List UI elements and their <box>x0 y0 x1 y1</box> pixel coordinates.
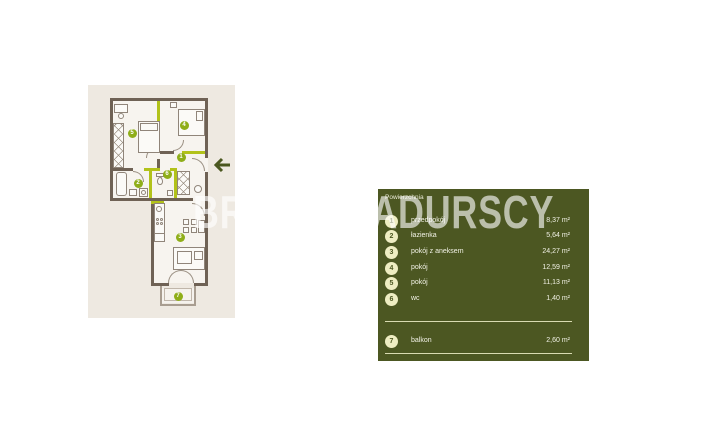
room-number-badge: 3 <box>385 246 398 259</box>
wall-segment <box>110 198 154 201</box>
legend-divider <box>385 353 572 354</box>
legend-row-balcony: 7 balkon 2,60 m² <box>385 335 579 348</box>
chair-icon <box>183 219 189 225</box>
room-number-badge: 5 <box>385 277 398 290</box>
balcony-railing <box>194 286 196 306</box>
wall-segment <box>157 159 160 168</box>
room-badge-5: 5 <box>128 129 137 138</box>
kitchen-sink-icon <box>156 206 162 212</box>
room-badge-2: 2 <box>134 179 143 188</box>
legend-row: 3 pokój z aneksem 24,27 m² <box>385 246 579 259</box>
entrance-arrow-icon <box>212 157 232 173</box>
wall-segment <box>205 98 208 158</box>
legend-row: 6 wc 1,40 m² <box>385 293 579 306</box>
accent-wall <box>182 151 205 154</box>
stove-burner-icon <box>160 222 163 225</box>
desk-icon <box>114 104 128 113</box>
wall-segment <box>113 168 133 171</box>
room-area: 2,60 m² <box>546 337 570 344</box>
stove-burner-icon <box>156 222 159 225</box>
room-number-badge: 7 <box>385 335 398 348</box>
chair-icon <box>183 227 189 233</box>
side-table-icon <box>194 251 203 260</box>
small-sink-icon <box>167 190 173 196</box>
room-badge-4: 4 <box>180 121 189 130</box>
legend-divider <box>385 321 572 322</box>
room-label: pokój <box>411 264 428 271</box>
accent-wall <box>149 171 152 198</box>
watermark: BRACIA SADURSCY <box>193 189 554 235</box>
room-badge-3: 3 <box>176 233 185 242</box>
room-number-badge: 6 <box>385 293 398 306</box>
room-label: balkon <box>411 337 432 344</box>
legend-row: 5 pokój 11,13 m² <box>385 277 579 290</box>
chair-icon <box>118 113 124 119</box>
nightstand-icon <box>170 102 177 108</box>
room-label: pokój <box>411 279 428 286</box>
room-area: 12,59 m² <box>542 264 570 271</box>
pillow-icon <box>196 111 203 121</box>
fridge-icon <box>154 233 165 242</box>
room-number-badge: 4 <box>385 262 398 275</box>
sink-icon <box>129 189 137 196</box>
pillow-icon <box>140 123 158 131</box>
wall-segment <box>194 283 208 286</box>
toilet-icon <box>157 177 163 185</box>
balcony-railing <box>160 286 162 306</box>
wall-segment <box>160 151 174 154</box>
bathtub-icon <box>116 172 127 196</box>
room-area: 1,40 m² <box>546 295 570 302</box>
entrance-opening <box>205 158 208 172</box>
wardrobe-icon <box>113 123 124 168</box>
room-area: 24,27 m² <box>542 248 570 255</box>
sofa-cushion-icon <box>177 251 192 264</box>
stove-burner-icon <box>156 218 159 221</box>
balcony-railing <box>160 304 196 306</box>
legend-row: 4 pokój 12,59 m² <box>385 262 579 275</box>
room-label: pokój z aneksem <box>411 248 464 255</box>
room-badge-1: 1 <box>177 153 186 162</box>
washer-drum-icon <box>141 190 146 195</box>
room-label: wc <box>411 295 420 302</box>
room-area: 11,13 m² <box>543 279 570 286</box>
room-badge-6: 6 <box>163 170 172 179</box>
accent-wall <box>144 168 160 171</box>
stove-burner-icon <box>160 218 163 221</box>
page: 1 2 3 4 5 6 7 Powierzchnia 1 przedpokój … <box>0 0 710 424</box>
shaft-icon <box>177 171 190 195</box>
room-badge-7: 7 <box>174 292 183 301</box>
